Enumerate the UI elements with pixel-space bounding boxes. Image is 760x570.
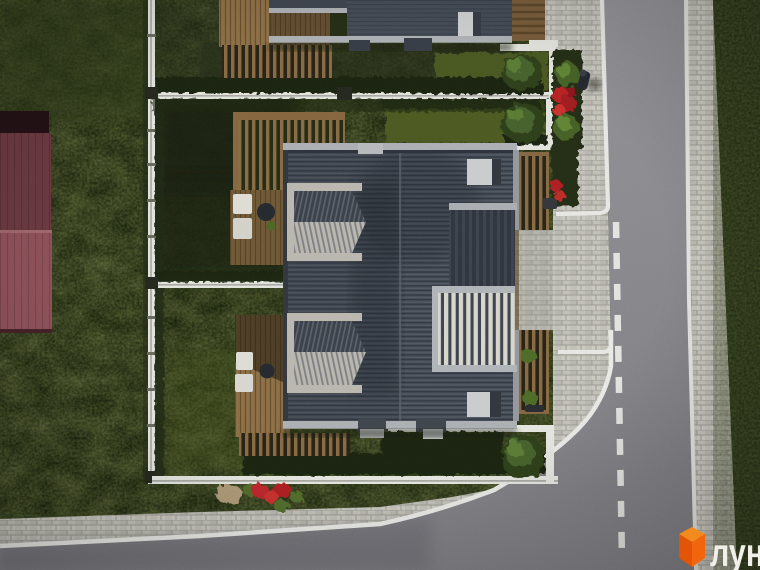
svg-text:лун: лун bbox=[710, 531, 760, 570]
